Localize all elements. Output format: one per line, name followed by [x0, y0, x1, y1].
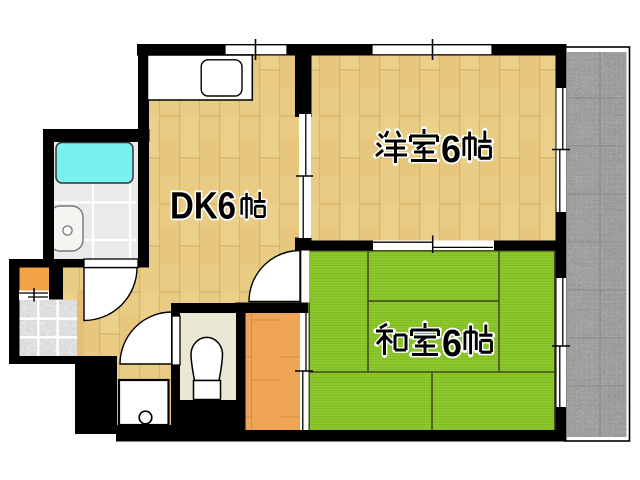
svg-text:DK6: DK6	[170, 186, 236, 228]
svg-text:6: 6	[442, 323, 462, 365]
svg-text:6: 6	[441, 129, 461, 171]
